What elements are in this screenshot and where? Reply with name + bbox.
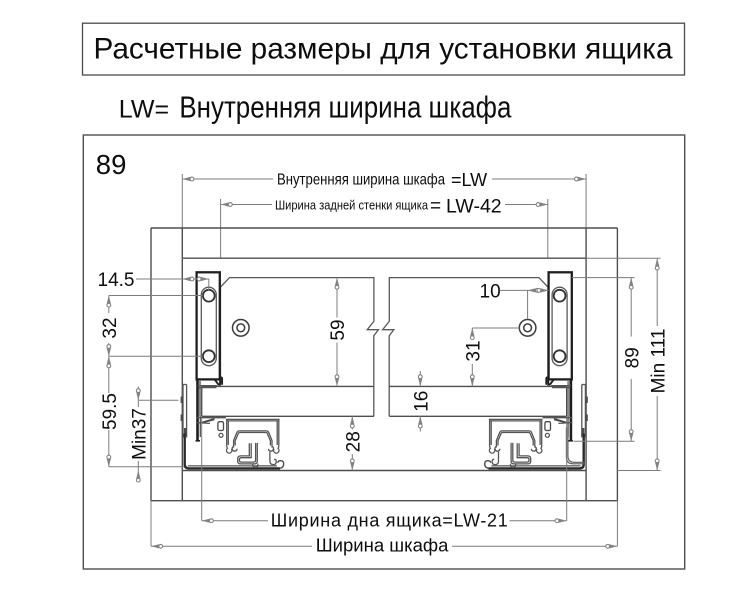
svg-text:89: 89 — [622, 347, 643, 368]
svg-text:59.5: 59.5 — [100, 393, 121, 430]
svg-text:89: 89 — [96, 149, 127, 180]
svg-text:Min 111: Min 111 — [648, 329, 669, 394]
svg-text:28: 28 — [344, 431, 365, 452]
svg-text:Ширина дна ящика=LW-21: Ширина дна ящика=LW-21 — [271, 511, 508, 531]
svg-text:Ширина задней стенки ящика: Ширина задней стенки ящика — [275, 198, 429, 213]
svg-text:LW-42: LW-42 — [446, 196, 502, 218]
svg-text:=: = — [430, 196, 441, 217]
svg-text:59: 59 — [328, 319, 349, 340]
svg-text:Расчетные размеры для установк: Расчетные размеры для установки ящика — [94, 33, 673, 66]
svg-text:14.5: 14.5 — [98, 270, 135, 291]
svg-text:Внутренняя ширина шкафа: Внутренняя ширина шкафа — [277, 172, 445, 189]
svg-text:31: 31 — [464, 340, 485, 361]
svg-text:16: 16 — [412, 391, 433, 412]
svg-text:=LW: =LW — [451, 170, 487, 190]
svg-text:32: 32 — [100, 317, 121, 338]
svg-text:Min37: Min37 — [129, 408, 150, 460]
svg-text:10: 10 — [480, 281, 501, 302]
svg-text:Ширина шкафа: Ширина шкафа — [316, 535, 449, 556]
